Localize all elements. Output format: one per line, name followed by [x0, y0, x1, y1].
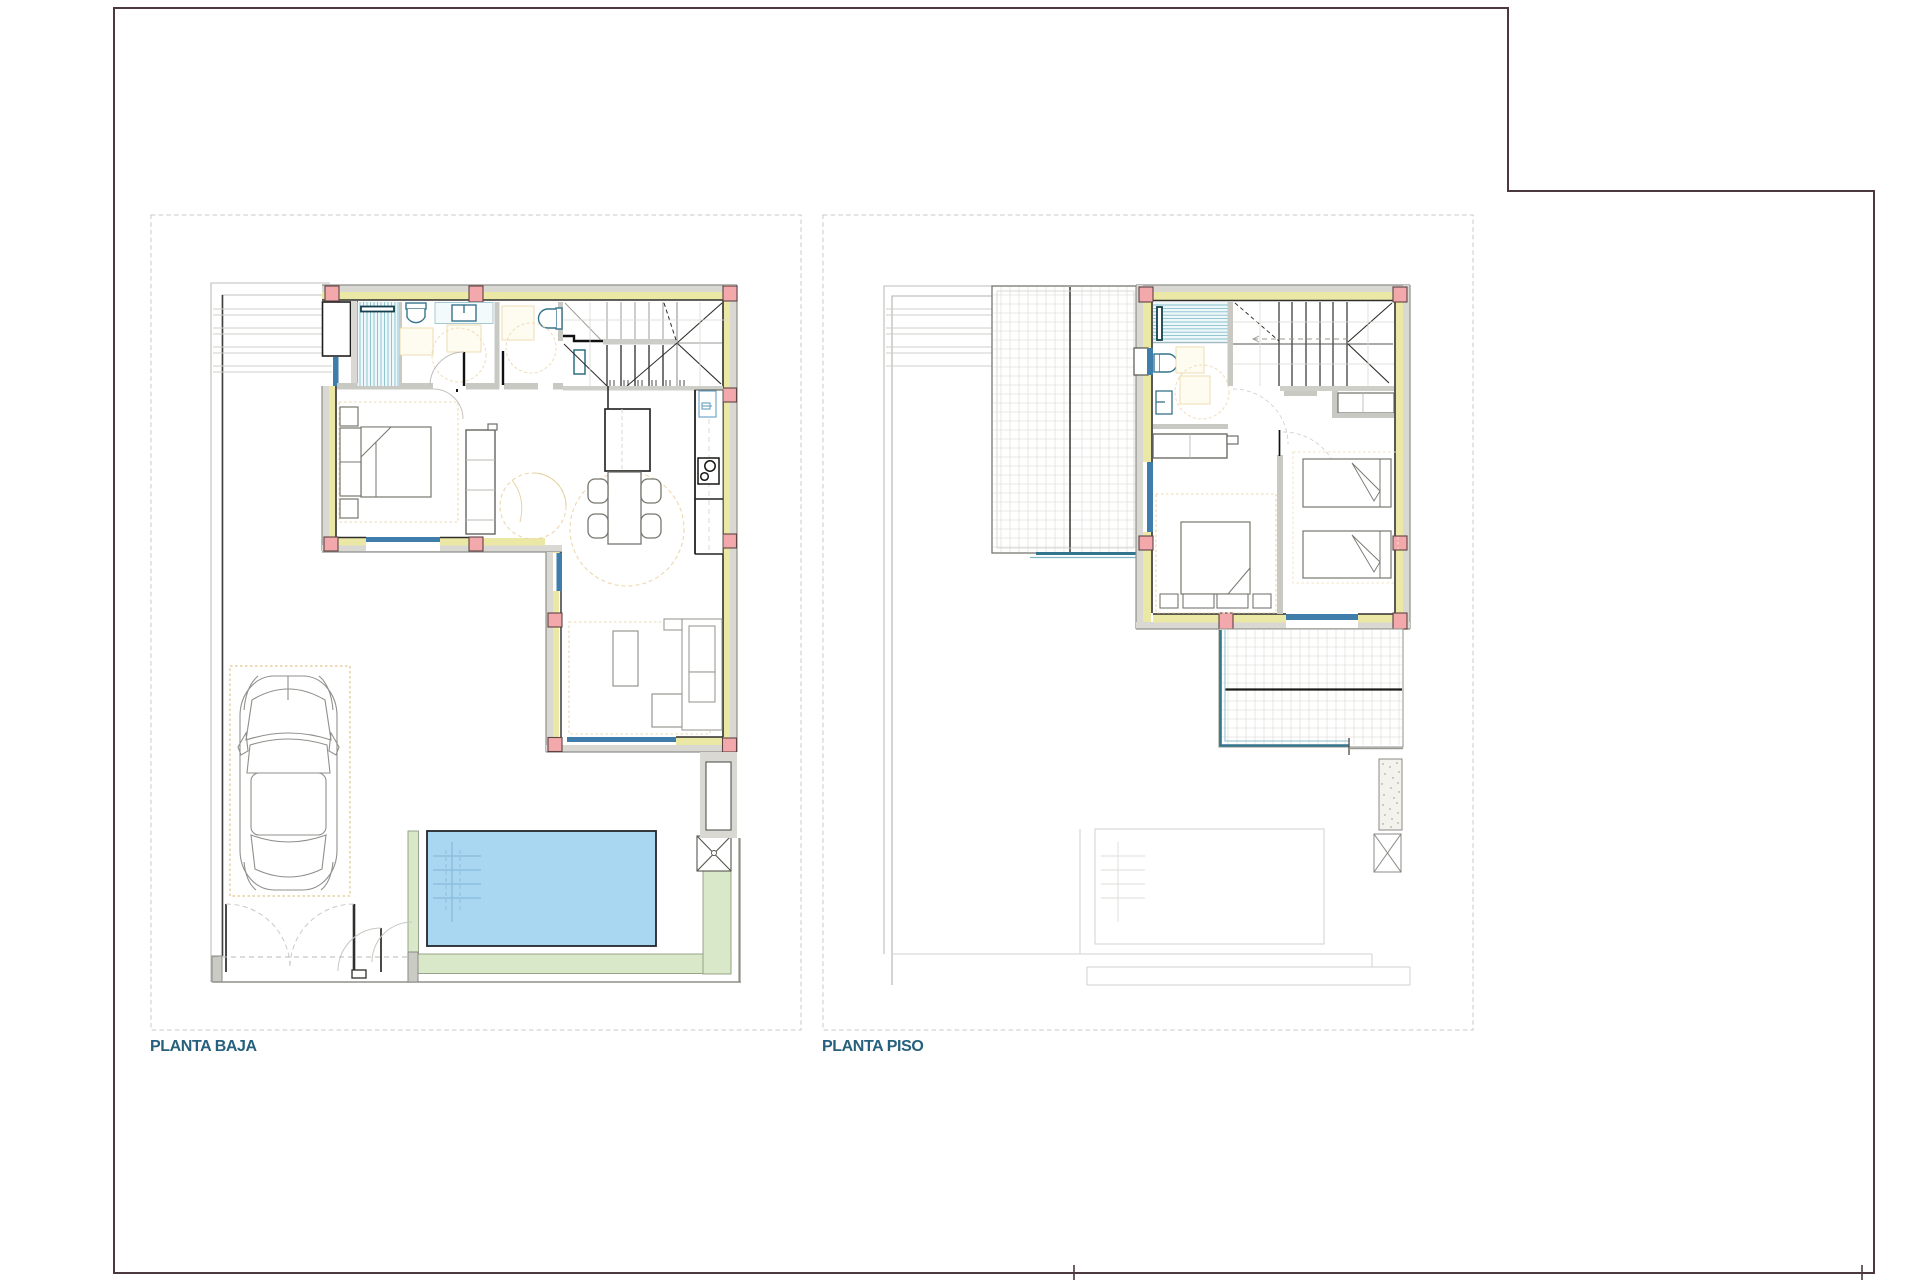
- svg-text:PLANTA PISO: PLANTA PISO: [822, 1038, 923, 1055]
- svg-text:PLANTA BAJA: PLANTA BAJA: [150, 1038, 258, 1055]
